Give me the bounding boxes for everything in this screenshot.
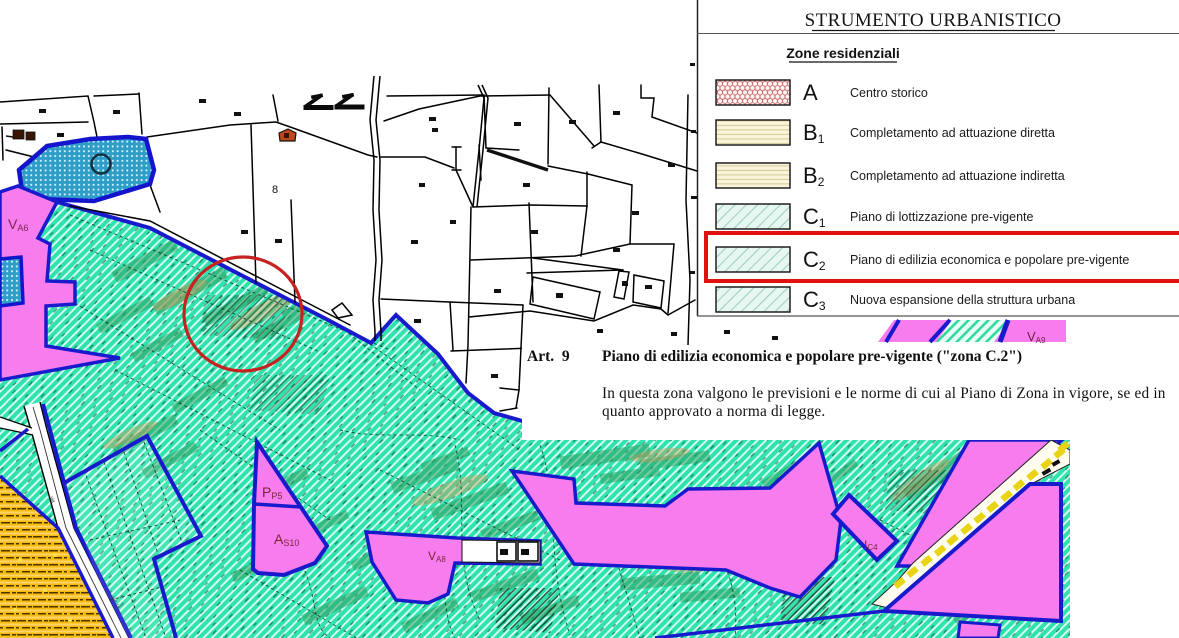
svg-text:quanto approvato a norma di le: quanto approvato a norma di legge. [602,403,825,420]
svg-text:Completamento ad attuazione in: Completamento ad attuazione indiretta [850,169,1065,183]
svg-text:Piano di edilizia economica e: Piano di edilizia economica e popolare p… [602,348,1022,365]
svg-text:Centro storico: Centro storico [850,86,928,100]
svg-text:Art. 9: Art. 9 [527,348,570,365]
svg-text:Completamento ad attuazione di: Completamento ad attuazione diretta [850,126,1055,140]
svg-text:Piano di edilizia economica e: Piano di edilizia economica e popolare p… [850,253,1129,267]
svg-text:In questa zona valgono le prev: In questa zona valgono le previsioni e l… [602,385,1166,402]
svg-text:A: A [803,80,818,105]
svg-text:Nuova espansione della struttu: Nuova espansione della struttura urbana [850,293,1075,307]
svg-text:Zone residenziali: Zone residenziali [786,45,900,61]
svg-text:STRUMENTO URBANISTICO: STRUMENTO URBANISTICO [805,10,1062,31]
svg-text:Piano di lottizzazione pre-vig: Piano di lottizzazione pre-vigente [850,210,1033,224]
svg-text:8: 8 [272,184,278,196]
